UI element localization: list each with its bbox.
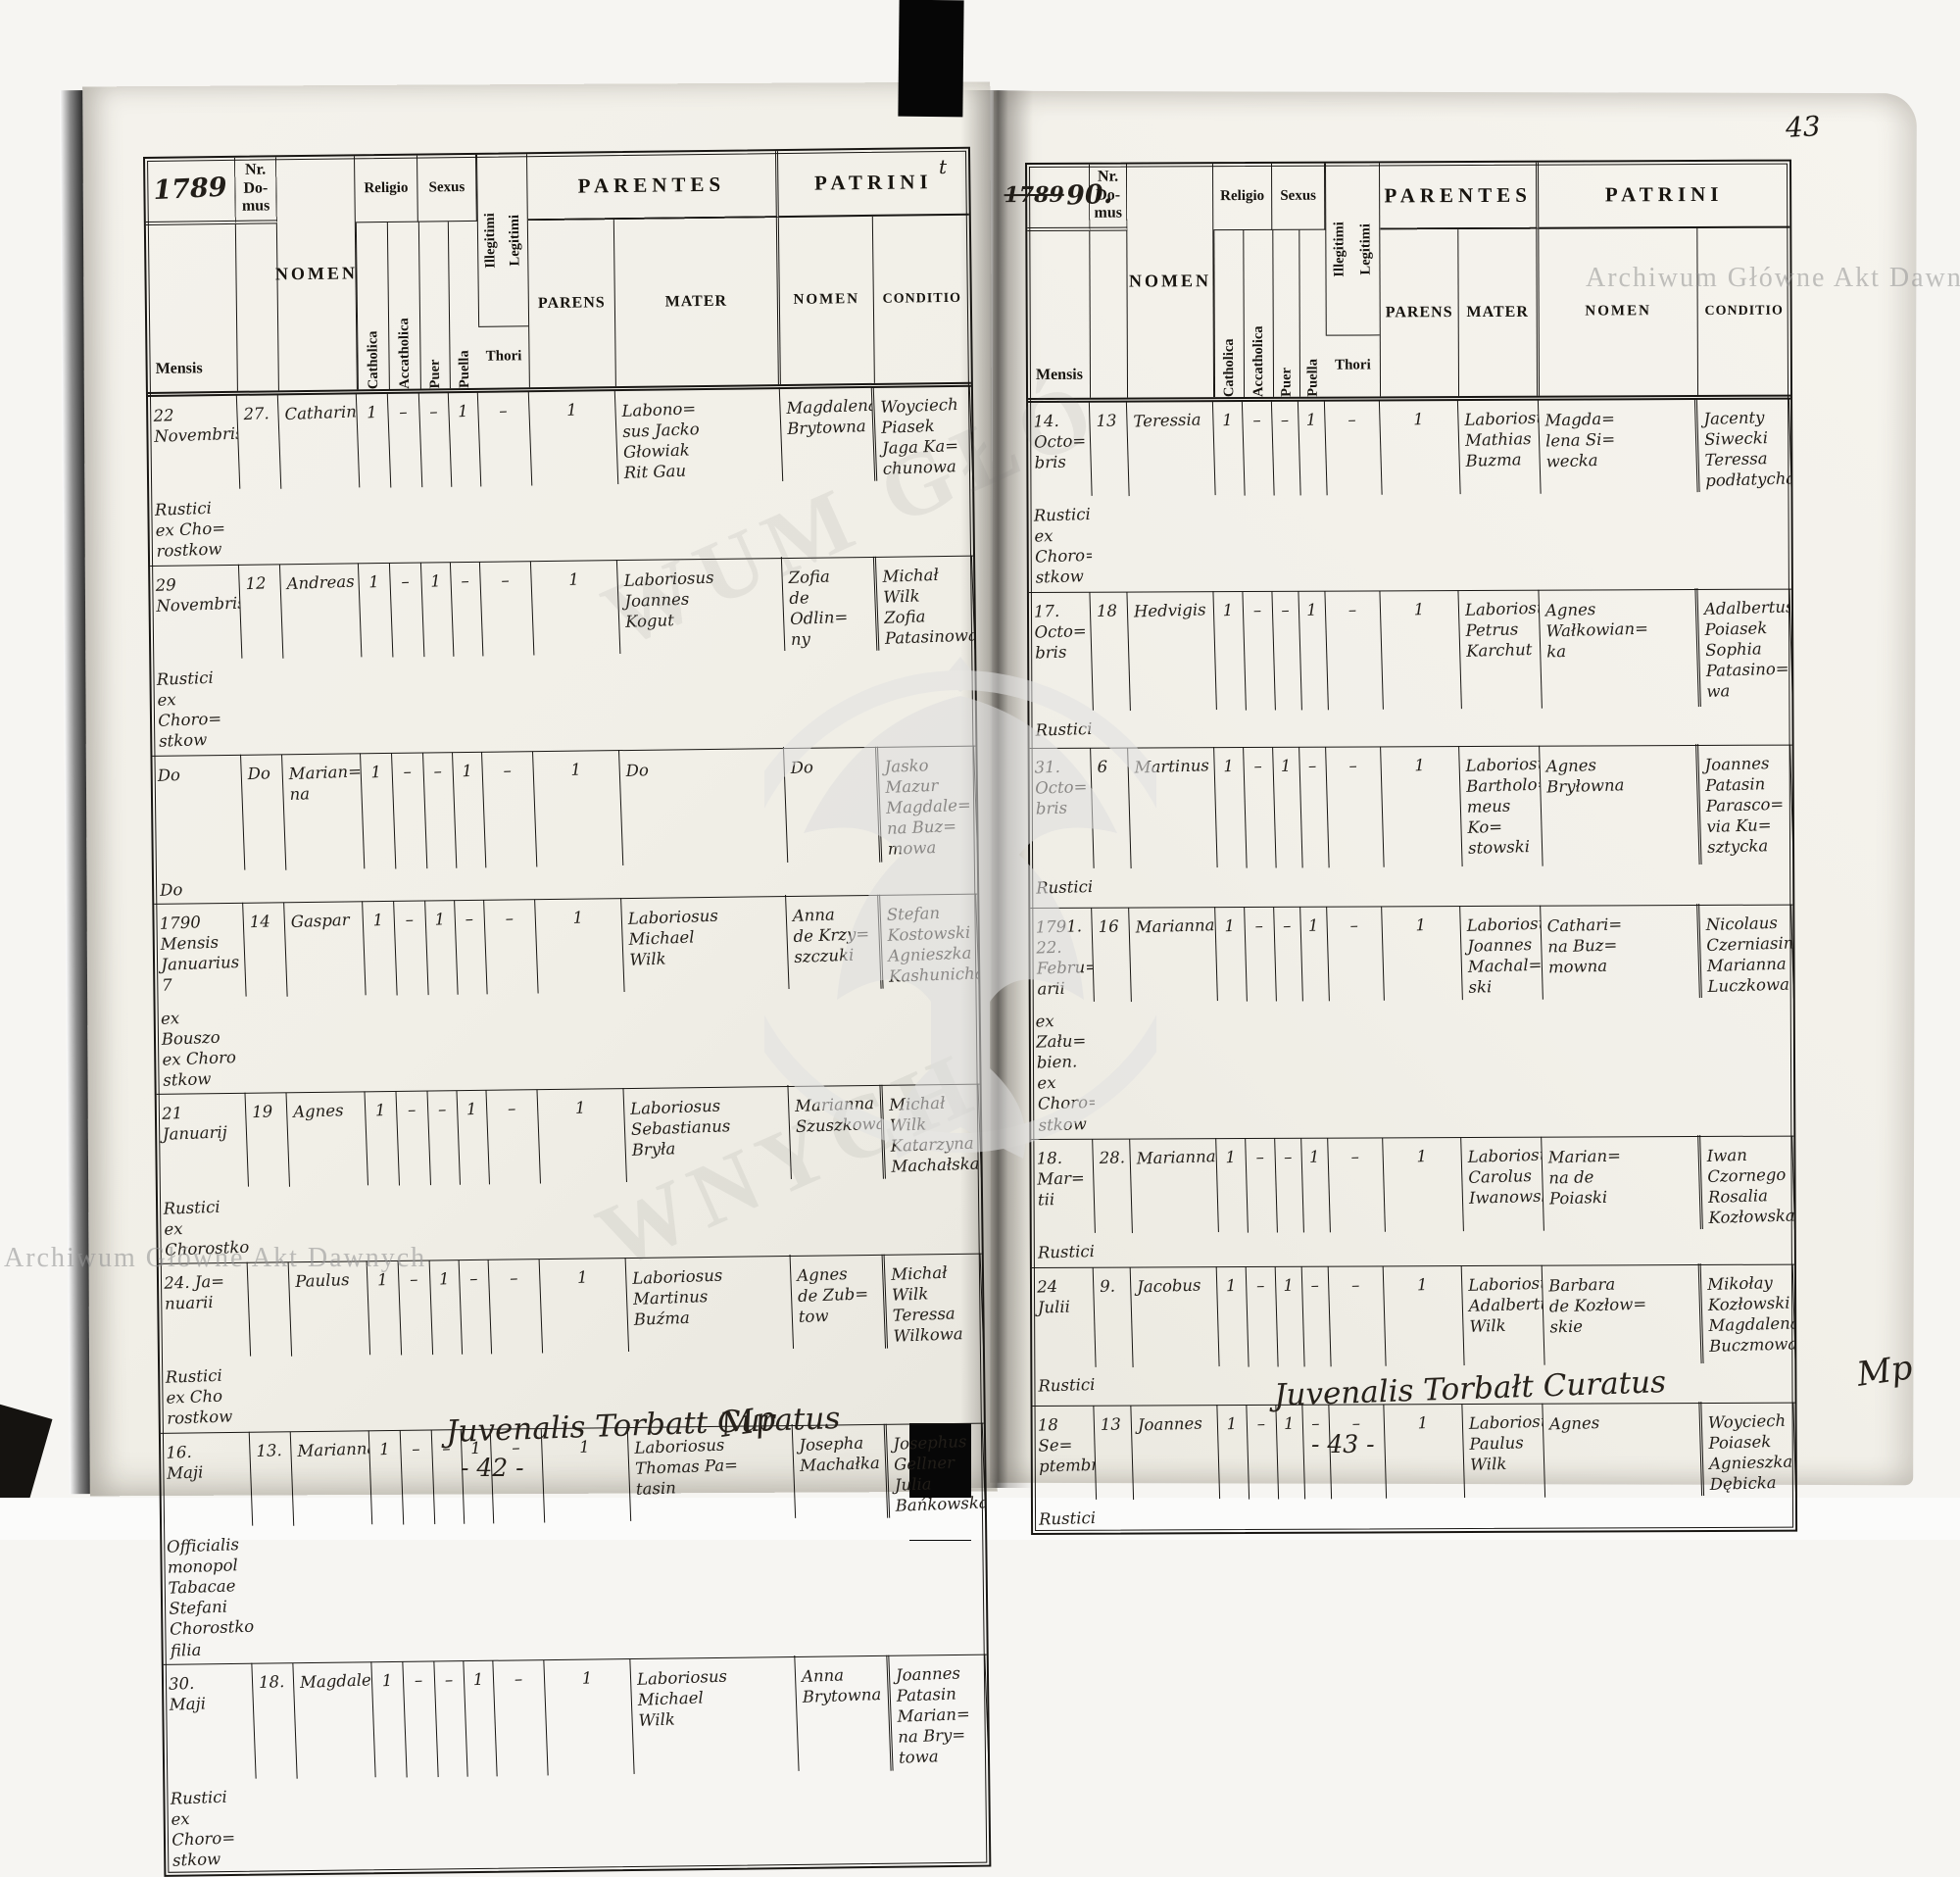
mark-cell-illegitimi: – [1325, 591, 1383, 712]
mark-cell-puella: 1 [464, 1660, 497, 1777]
mark-cell-legitimi: 1 [1382, 906, 1463, 1003]
mark-cell-catholica: 1 [1214, 748, 1248, 869]
mark-cell-illegitimi: – [480, 561, 534, 657]
mensis-cell: 21 Januarij [156, 1093, 249, 1191]
conditio-header: CONDITIO [873, 216, 971, 383]
nomen-cell: Teressia [1127, 401, 1216, 498]
mater-cell: Agnes Bryłowna [1540, 744, 1701, 869]
nomen-cell: Andreas [280, 563, 362, 660]
mark-cell-accatholica: – [388, 393, 423, 489]
nomen-cell: Joannes [1131, 1405, 1220, 1502]
nomen-cell: Marianna [1130, 1138, 1219, 1235]
mark-cell-catholica: 1 [1213, 592, 1246, 712]
domus-number-cell: 13. [250, 1431, 295, 1527]
patrini-nomen-cell: Iwan Czornego Rosalia Kozłowska [1700, 1135, 1795, 1232]
register-row: 30. Maji18.Magdalena1––1–1Laboriosus Mic… [164, 1655, 990, 1874]
mark-cell-accatholica: – [394, 901, 429, 997]
conditio-header: CONDITIO [1697, 228, 1790, 395]
mark-cell-puella: 1 [1298, 401, 1328, 496]
register-row: 18 Se= ptembris13Joannes1–1––1Laboriosus… [1033, 1403, 1796, 1533]
nomen-header: NOMEN [276, 156, 358, 390]
mensis-cell: Do [151, 754, 245, 872]
mark-cell-legitimi: 1 [1380, 400, 1461, 497]
domus-number-cell: 18 [1090, 592, 1130, 712]
mater-cell: Agnes [1543, 1402, 1704, 1501]
mark-cell-legitimi: 1 [544, 1658, 634, 1777]
conditio-cell: Rustici [1032, 1366, 1096, 1406]
illegitimi-header: Illegitimi [476, 155, 504, 326]
domus-number-cell: 13 [1090, 402, 1130, 497]
mensis-cell: 18. Mar= tii [1030, 1139, 1096, 1235]
mark-cell-accatholica: – [392, 753, 427, 869]
domus-number-cell: Do [241, 754, 286, 870]
parens-cell: Laboriosus Sebastianus Bryła [624, 1085, 792, 1186]
patrini-nomen-cell: Michał Wilk Katarzyna Machałska [882, 1084, 981, 1182]
mensis-cell: 22 Novembris [147, 395, 240, 493]
mark-cell-legitimi: 1 [1384, 1404, 1465, 1501]
mensis-cell: 29 Novembris [149, 564, 242, 662]
mater-cell: Magdalena Brytowna [780, 387, 877, 485]
mensis-cell: 16. Maji [160, 1431, 253, 1529]
mark-cell-accatholica: – [1243, 402, 1275, 497]
mark-cell-legitimi: 1 [538, 1088, 627, 1186]
patrini-nomen-header: NOMEN [779, 217, 875, 384]
register-row: DoDoMarian= na1––1–1DoDoJasko Mazur Magd… [152, 746, 977, 905]
mark-cell-legitimi: 1 [531, 560, 620, 658]
mark-cell-catholica: 1 [1215, 908, 1248, 1003]
year-cell: 1789 90. [1027, 165, 1090, 231]
mark-cell-legitimi: 1 [1381, 746, 1463, 868]
conditio-cell: Officialis monopol Tabacae Stefani Choro… [160, 1526, 255, 1665]
mark-cell-legitimi: 1 [540, 1258, 629, 1356]
mark-cell-illegitimi: – [1329, 1265, 1387, 1366]
mark-cell-legitimi: 1 [535, 898, 624, 996]
register-table-right: 1789 90. Nr. Do- mus NOMEN Religio Sexus… [1025, 160, 1797, 1535]
domus-number-cell: 6 [1091, 748, 1132, 869]
mark-cell-puer: – [1275, 1138, 1304, 1233]
conditio-cell: ex Bouszo ex Choro stkow [154, 997, 247, 1095]
mater-cell: Anna Brytowna [795, 1655, 893, 1773]
register-row: 24. Ja= nuariiPaulus1–1––1Laboriosus Mar… [159, 1255, 984, 1434]
puella-header: Puella [448, 222, 479, 388]
mensis-header: Mensis [1027, 231, 1091, 398]
parens-cell: Laboriosus Joannes Kogut [617, 557, 785, 658]
mark-cell-catholica: 1 [363, 902, 398, 998]
patrini-nomen-cell: Josephus Gellner Julia Bańkowska [887, 1422, 986, 1520]
mark-cell-legitimi: 1 [1383, 1137, 1464, 1234]
mark-cell-puer: – [1272, 591, 1301, 711]
nomen-header: NOMEN [1127, 164, 1214, 397]
nomen-cell: Jacobus [1131, 1266, 1220, 1368]
parens-cell: Laboriosus Joannes Machal= ski [1460, 906, 1543, 1003]
year-struck: 1789 [1004, 183, 1063, 209]
mark-cell-puer: 1 [421, 563, 455, 658]
conditio-cell: Do [154, 869, 245, 905]
mark-cell-illegitimi: – [487, 1090, 541, 1186]
legitimi-header: Legitimi [1352, 163, 1380, 334]
signature-flourish-left: Mp [717, 1398, 778, 1448]
domus-number-cell: 13 [1094, 1406, 1134, 1501]
parens-cell: Laboriosus Michael Wilk [630, 1655, 799, 1777]
domus-number-cell: 14 [243, 903, 288, 999]
domus-number-cell: 19 [246, 1093, 291, 1189]
nr-domus-header: Nr. Do- mus [235, 157, 277, 224]
illegitimi-header: Illegitimi [1325, 164, 1353, 335]
mark-cell-accatholica: – [401, 1430, 436, 1526]
parens-cell: Laboriosus Bartholo= meus Ko= stowski [1459, 746, 1543, 869]
nomen-cell: Hedvigis [1127, 591, 1216, 713]
mark-cell-accatholica: – [1247, 1405, 1279, 1500]
parens-cell: Laboriosus Michael Wilk [621, 895, 789, 996]
mark-cell-accatholica: – [1245, 907, 1277, 1002]
mater-cell: Barbara de Kozłow= skie [1543, 1263, 1704, 1367]
mensis-header: Mensis [146, 224, 238, 392]
table-header: 1789 Nr. Do- mus NOMEN Religio Sexus Ill… [145, 149, 971, 397]
mark-cell-legitimi: 1 [533, 750, 623, 868]
mark-cell-puer: – [419, 393, 453, 488]
mark-cell-catholica: 1 [357, 394, 392, 490]
year-cell: 1789 [145, 158, 236, 225]
mark-cell-accatholica: – [1243, 591, 1275, 711]
mark-cell-puella: – [1299, 747, 1330, 868]
register-row: 1791. 22. Febru= arii16Marianna1––1–1Lab… [1030, 905, 1793, 1139]
blank-header-cell [236, 223, 279, 391]
patrini-nomen-cell: Adalbertus Poiasek Sophia Patasino= wa [1697, 588, 1792, 710]
conditio-cell: Rustici ex Choro= stkow [164, 1778, 257, 1876]
register-row: 16. Maji13.Marianna1––1–1Laboriosus Thom… [161, 1423, 987, 1664]
puella-header: Puella [1298, 230, 1326, 397]
mark-cell-catholica: 1 [369, 1430, 405, 1526]
legitimi-header: Legitimi [502, 154, 528, 325]
register-table-left: 1789 Nr. Do- mus NOMEN Religio Sexus Ill… [143, 147, 991, 1877]
thori-header: Thori [1326, 335, 1380, 396]
mensis-cell: 17. Octo= bris [1027, 592, 1093, 713]
signature-flourish-right: Mp [1854, 1347, 1915, 1397]
mark-cell-puer: 1 [1273, 747, 1303, 868]
conditio-cell: Rustici [1031, 1233, 1095, 1267]
mensis-cell: 24 Julii [1031, 1266, 1097, 1367]
parens-cell: Laboriosus Carolus Iwanowski [1461, 1137, 1544, 1234]
puer-header: Puer [418, 222, 450, 388]
register-row: 22 Novembris27.Catharina1––1–1Labono= su… [148, 387, 973, 567]
legitimacy-subheaders: Illegitimi Legitimi [1325, 163, 1380, 335]
register-row: 1790 Mensis Januarius 714Gaspar1–1––1Lab… [154, 895, 979, 1095]
patrini-nomen-cell: Michał Wilk Zofia Patasinowa [876, 555, 975, 653]
conditio-cell: Rustici [1030, 868, 1094, 909]
mark-cell-legitimi: 1 [529, 390, 618, 488]
domus-number-cell: 28. [1093, 1139, 1133, 1234]
mark-cell-puella: – [451, 562, 484, 657]
conditio-cell: Rustici ex Choro= stkow [1027, 496, 1093, 592]
register-row: 17. Octo= bris18Hedvigis1––1–1Laboriosus… [1029, 589, 1792, 748]
thori-header-group: Illegitimi Legitimi Thori [476, 154, 530, 388]
mark-cell-illegitimi: – [1326, 747, 1385, 869]
patrini-nomen-cell: Joannes Patasin Parasco= via Ku= sztycka [1698, 744, 1794, 867]
table-header: 1789 90. Nr. Do- mus NOMEN Religio Sexus… [1027, 162, 1790, 403]
catholica-header: Catholica [356, 222, 389, 389]
catholica-header: Catholica [1213, 230, 1244, 397]
mark-cell-legitimi: 1 [1380, 590, 1461, 711]
mark-cell-catholica: 1 [371, 1661, 407, 1778]
register-rows-left: 22 Novembris27.Catharina1––1–1Labono= su… [148, 387, 989, 1875]
mensis-cell: 18 Se= ptembris [1031, 1405, 1097, 1501]
mater-header: MATER [1458, 229, 1540, 396]
mater-cell: Marian= na de Poiaski [1542, 1135, 1703, 1234]
mark-cell-puer: 1 [1276, 1266, 1305, 1366]
parens-cell: Laboriosus Petrus Karchut [1458, 590, 1542, 712]
mater-cell: Agnes Wałkowian= ka [1539, 588, 1700, 712]
puer-header: Puer [1272, 230, 1299, 397]
parens-header: PARENS [528, 220, 616, 387]
mark-cell-illegitimi: – [1328, 1138, 1386, 1234]
mater-cell: Anna de Krzy= szczuki [786, 895, 883, 993]
mater-cell: Magda= lena Si= wecka [1539, 398, 1700, 497]
mark-cell-puer: – [428, 1091, 462, 1186]
mark-cell-illegitimi: – [478, 392, 532, 488]
parens-cell: Laboriosus Mathias Buzma [1458, 400, 1542, 497]
register-row: 14. Octo= bris13Teressia1––1–1Laboriosus… [1028, 400, 1791, 593]
parens-header: PARENS [1380, 229, 1459, 396]
mark-cell-puella: 1 [1300, 907, 1330, 1002]
mark-cell-puella: – [460, 1260, 493, 1355]
nomen-cell: Marianna [291, 1430, 372, 1527]
nomen-cell: Catharina [278, 393, 360, 490]
mark-cell-accatholica: – [1244, 747, 1277, 868]
mark-cell-puer: 1 [1276, 1405, 1305, 1500]
mark-cell-accatholica: – [397, 1091, 432, 1187]
mensis-cell: 31. Octo= bris [1028, 748, 1095, 870]
nr-domus-header: Nr. Do- mus [1090, 165, 1127, 231]
mark-cell-accatholica: – [1246, 1139, 1278, 1234]
religio-header: Religio [355, 156, 418, 223]
mark-cell-catholica: 1 [1216, 1139, 1249, 1234]
parentes-header: PARENTES [527, 151, 779, 221]
mark-cell-puella: 1 [1301, 1138, 1331, 1233]
nomen-cell: Marian= na [282, 753, 365, 870]
mark-cell-catholica: 1 [1217, 1405, 1249, 1500]
mater-cell: Marianna Szuszkowa [788, 1085, 885, 1183]
mater-cell: Do [784, 746, 882, 864]
nomen-cell: Gaspar [284, 902, 366, 999]
nomen-cell: Paulus [289, 1260, 370, 1358]
conditio-cell: Rustici ex Cho rostkow [159, 1357, 252, 1434]
parens-cell: Do [619, 747, 788, 868]
parens-cell: Laboriosus Martinus Buźma [626, 1255, 794, 1356]
mark-cell-catholica: 1 [359, 563, 394, 659]
conditio-cell: Rustici ex Chorostkow [157, 1187, 250, 1264]
domus-number-cell [248, 1262, 293, 1358]
patrini-nomen-cell: Stefan Kostowski Agnieszka Kashunicha [880, 894, 979, 992]
mark-cell-puella: 1 [449, 392, 482, 487]
mensis-cell: 30. Maji [162, 1662, 256, 1781]
mark-cell-puella: 1 [453, 752, 486, 868]
parens-cell: Labono= sus Jacko Głowiak Rit Gau [615, 387, 783, 488]
mark-cell-illegitimi: – [1325, 401, 1383, 497]
conditio-cell: Rustici ex Cho= rostkow [148, 489, 241, 567]
mark-cell-illegitimi: – [484, 900, 538, 996]
nomen-cell: Agnes [287, 1092, 368, 1189]
parentes-header: PARENTES [1380, 163, 1539, 230]
register-row: 31. Octo= bris6Martinus1–1––1Laboriosus … [1030, 745, 1793, 908]
thori-header-group: Illegitimi Legitimi Thori [1325, 163, 1381, 396]
mark-cell-puer: – [1272, 401, 1301, 496]
binding-strip-top [898, 0, 963, 117]
thori-header: Thori [478, 326, 529, 388]
mark-cell-accatholica: – [399, 1260, 434, 1357]
religio-header: Religio [1213, 164, 1272, 230]
register-row: 21 Januarij19Agnes1––1–1Laboriosus Sebas… [157, 1085, 982, 1264]
page-number-left: - 42 - [461, 1453, 524, 1484]
mensis-cell: 1790 Mensis Januarius 7 [153, 903, 246, 1001]
domus-number-cell: 18. [252, 1663, 297, 1780]
mark-cell-puer: – [1274, 907, 1303, 1002]
parens-cell: Laboriosus Paulus Wilk [1462, 1403, 1545, 1500]
mark-cell-accatholica: – [390, 563, 425, 659]
register-row: 29 Novembris12Andreas1–1––1Laboriosus Jo… [150, 556, 975, 756]
folio-number: 43 [1785, 109, 1821, 146]
mark-cell-catholica: 1 [367, 1260, 403, 1357]
mark-cell-catholica: 1 [366, 1092, 401, 1188]
mark-cell-illegitimi: – [1327, 907, 1385, 1003]
nomen-cell: Martinus [1128, 747, 1218, 870]
domus-number-cell: 16 [1092, 908, 1132, 1003]
blank-header-cell [1090, 231, 1128, 398]
register-row: 18. Mar= tii28.Marianna1––1–1Laboriosus … [1031, 1137, 1794, 1268]
mensis-cell: 24. Ja= nuarii [158, 1262, 251, 1360]
mark-cell-puella: 1 [458, 1091, 491, 1186]
mensis-cell: 14. Octo= bris [1027, 402, 1093, 498]
year-handwritten: 1789 [153, 171, 228, 208]
patrini-nomen-cell: Woyciech Poiasek Agnieszka Dębicka [1701, 1402, 1796, 1499]
mark-cell-puella: 1 [1298, 591, 1328, 711]
mark-cell-catholica: 1 [1213, 402, 1246, 497]
mater-header: MATER [614, 218, 781, 386]
patrini-nomen-cell: Jasko Mazur Magdale= na Buz= mowa [878, 745, 978, 864]
domus-number-cell: 9. [1094, 1267, 1134, 1368]
register-scan: { "scan": { "corner_page_number": "43", … [0, 0, 1960, 1540]
accatholica-header: Accatholica [387, 222, 420, 389]
stray-ink-mark: t [939, 155, 947, 180]
mark-cell-illegitimi: – [493, 1659, 548, 1776]
mater-cell: Cathari= na Buz= mowna [1541, 904, 1702, 1003]
patrini-nomen-cell: Woyciech Piasek Jaga Ka= chunowa [874, 386, 973, 484]
patrini-nomen-cell: Jacenty Siwecki Teressa podłatycha [1697, 398, 1792, 495]
mark-cell-illegitimi: – [482, 751, 537, 867]
patrini-nomen-cell: Joannes Patasin Marian= na Bry= towa [889, 1654, 989, 1772]
patrini-nomen-cell: Michał Wilk Teressa Wilkowa [885, 1253, 984, 1351]
mark-cell-puella: – [455, 901, 488, 996]
patrini-header: PATRINI [1539, 162, 1789, 229]
mark-cell-catholica: 1 [361, 753, 396, 869]
mark-cell-accatholica: – [403, 1661, 438, 1778]
nomen-cell: Marianna [1129, 907, 1218, 1004]
mark-cell-puer: 1 [430, 1260, 464, 1356]
patrini-nomen-cell: Nicolaus Czerniasin Marianna Luczkowa [1699, 904, 1794, 1001]
conditio-cell: Rustici [1029, 711, 1093, 749]
domus-number-cell: 12 [239, 565, 284, 661]
accatholica-header: Accatholica [1243, 230, 1273, 397]
register-rows-right: 14. Octo= bris13Teressia1––1–1Laboriosus… [1028, 400, 1795, 1533]
legitimacy-subheaders: Illegitimi Legitimi [476, 154, 528, 327]
conditio-cell: Rustici ex Choro= stkow [150, 659, 243, 757]
mark-cell-puer: 1 [425, 901, 459, 996]
sexus-header: Sexus [1272, 164, 1325, 230]
domus-number-cell: 27. [237, 395, 282, 491]
sexus-header: Sexus [417, 155, 477, 222]
mark-cell-puella: – [1302, 1266, 1332, 1366]
page-number-right: - 43 - [1311, 1429, 1375, 1460]
mensis-cell: 1791. 22. Febru= arii [1029, 908, 1095, 1004]
patrini-nomen-header: NOMEN [1539, 228, 1698, 396]
mark-cell-accatholica: – [1247, 1266, 1279, 1366]
conditio-cell: Rustici [1033, 1500, 1097, 1534]
mark-cell-catholica: 1 [1217, 1266, 1249, 1366]
mark-cell-puer: – [423, 752, 457, 868]
nomen-cell: Magdalena [293, 1661, 375, 1779]
patrini-nomen-cell: Mikołay Kozłowski Magdalena Buczmowa [1701, 1263, 1796, 1365]
parens-cell: Laboriosus Adalbertus Wilk [1462, 1264, 1545, 1366]
mater-cell: Agnes de Zub= tow [791, 1255, 888, 1353]
conditio-cell: ex Zału= bien. ex Choro= stkow [1029, 1002, 1096, 1139]
mark-cell-illegitimi: – [489, 1259, 543, 1355]
mark-cell-legitimi: 1 [1384, 1265, 1465, 1367]
mater-cell: Zofia de Odlin= ny [782, 557, 879, 655]
mark-cell-puer: – [434, 1661, 467, 1778]
